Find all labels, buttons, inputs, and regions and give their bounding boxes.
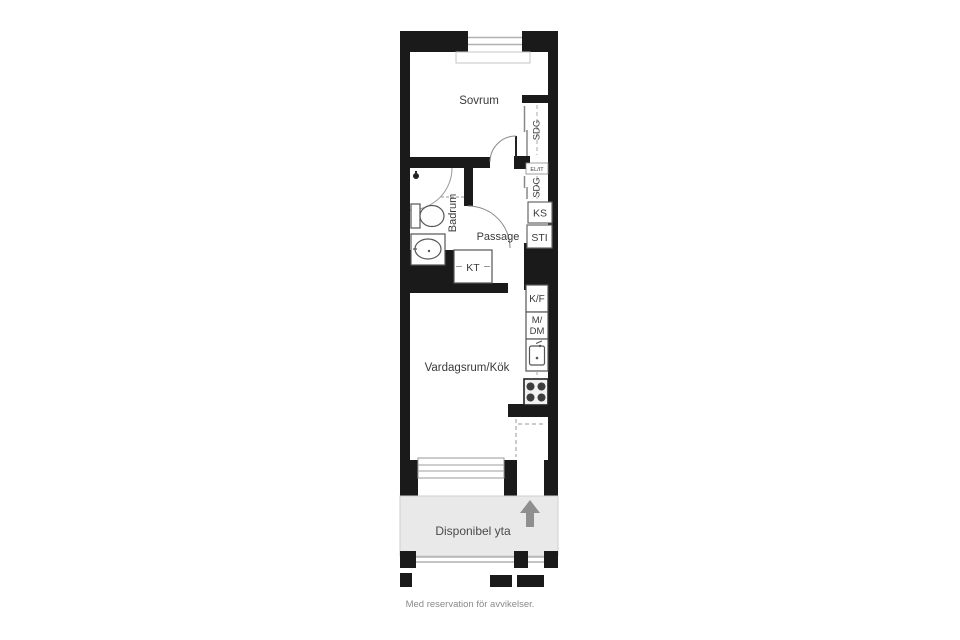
disclaimer-text: Med reservation för avvikelser.: [406, 599, 535, 610]
hall-label: Passage: [477, 231, 520, 243]
sti-cabinet: STI: [527, 225, 552, 248]
bathroom-label: Badrum: [447, 194, 459, 233]
sink-icon: [411, 234, 445, 265]
elit-label: EL/IT: [530, 167, 544, 173]
available-area-label: Disponibel yta: [435, 524, 511, 538]
sti-label: STI: [531, 232, 547, 244]
kf-label: K/F: [529, 294, 545, 305]
ks-cabinet: KS: [528, 202, 552, 223]
kt-label: KT: [466, 262, 480, 274]
hall-overhead-dashed: [516, 419, 546, 457]
floorplan-drawing: KT SDG EL/IT SDG KS STI K/F M/ DM: [0, 0, 960, 640]
mdm-label-line2: DM: [530, 326, 545, 337]
living-kitchen-label: Vardagsrum/Kök: [425, 362, 510, 374]
kt-unit: KT: [454, 250, 492, 283]
wardrobe-top-sdg: SDG: [525, 105, 543, 156]
wardrobe-mid-sdg: SDG: [525, 176, 543, 199]
fridge-freezer: K/F: [526, 285, 548, 312]
stove-icon: [524, 379, 548, 405]
bedroom-label: Sovrum: [459, 95, 499, 107]
bedroom-door: [490, 136, 516, 162]
shower-icon: [413, 171, 419, 179]
electrical-panel: EL/IT: [526, 163, 548, 174]
kitchen-sink-icon: [526, 339, 548, 371]
livingroom-window: [418, 458, 504, 478]
ks-label: KS: [533, 208, 547, 220]
sdg-mid-label: SDG: [532, 177, 543, 198]
mdm-label-line1: M/: [532, 315, 543, 326]
micro-dishwasher: M/ DM: [526, 312, 548, 339]
floorplan-canvas: KT SDG EL/IT SDG KS STI K/F M/ DM: [0, 0, 960, 640]
sdg-top-label: SDG: [532, 120, 543, 141]
toilet-icon: [411, 204, 444, 228]
